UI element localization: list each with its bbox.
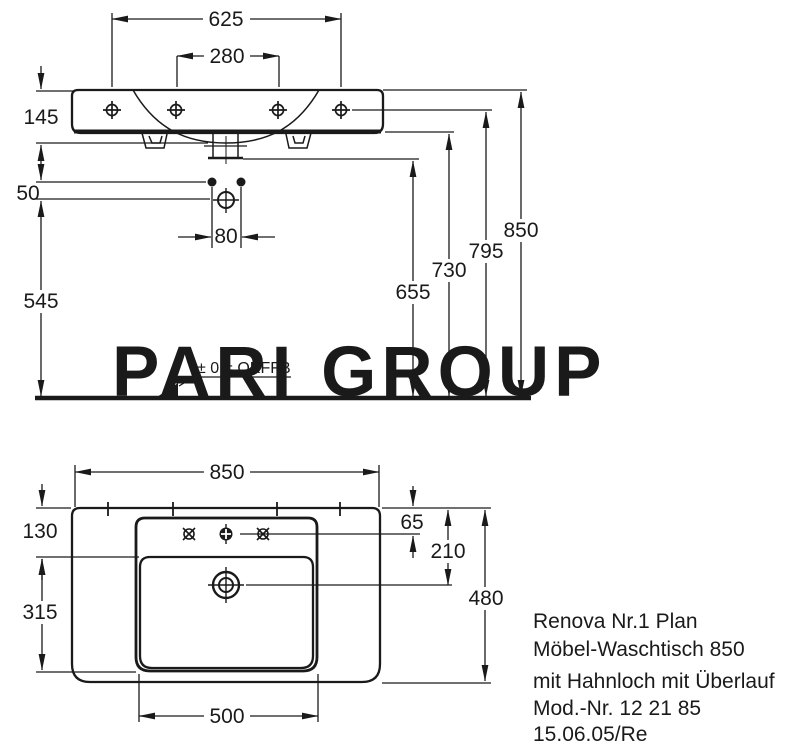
dim-label-850-width: 850 — [209, 461, 244, 484]
washbasin-dimension-drawing: PARI GROUP — [0, 0, 800, 753]
screw-hole-left — [208, 178, 217, 187]
product-feature: mit Hahnloch mit Überlauf — [533, 670, 775, 693]
dim-130: 130 — [22, 484, 139, 580]
optional-tap-hole-left — [183, 528, 195, 540]
left-bracket — [142, 133, 167, 148]
fixing-hole-3 — [269, 101, 287, 119]
dim-label-850-height: 850 — [503, 219, 538, 242]
dim-label-500: 500 — [209, 705, 244, 728]
dim-label-315: 315 — [22, 601, 57, 624]
product-name: Renova Nr.1 Plan — [533, 610, 698, 633]
dim-label-545: 545 — [23, 290, 58, 313]
dim-label-480: 480 — [468, 587, 503, 610]
product-model-number: Mod.-Nr. 12 21 85 — [533, 697, 701, 720]
dim-label-210: 210 — [430, 540, 465, 563]
dim-210: 210 — [425, 510, 471, 585]
dim-label-280: 280 — [209, 45, 244, 68]
floor-reference-label: ± 0 = OKFFB — [197, 360, 291, 377]
technical-drawing-page: PARI GROUP — [0, 0, 800, 753]
dim-label-50: 50 — [16, 182, 39, 205]
dim-label-795: 795 — [468, 240, 503, 263]
dim-315: 315 — [17, 559, 136, 672]
product-revision-date: 15.06.05/Re — [533, 723, 647, 746]
dim-545: 545 — [18, 201, 64, 396]
dim-label-145: 145 — [23, 106, 58, 129]
tap-hole-center — [220, 524, 233, 544]
dim-label-130: 130 — [22, 520, 57, 543]
fixing-hole-2 — [167, 101, 185, 119]
dim-50: 50 — [16, 182, 210, 205]
screw-hole-right — [237, 178, 246, 187]
dim-145: 145 — [23, 66, 73, 180]
fixing-hole-1 — [103, 101, 121, 119]
dim-label-655: 655 — [395, 281, 430, 304]
fixing-holes — [103, 101, 350, 119]
dim-label-80: 80 — [214, 225, 237, 248]
right-bracket — [286, 133, 311, 148]
dim-480: 480 — [382, 510, 509, 683]
dim-280: 280 — [177, 44, 279, 87]
dim-label-625: 625 — [208, 8, 243, 31]
drain-plan — [208, 567, 244, 603]
plan-view: 850 130 315 500 65 — [17, 460, 509, 728]
drain-stub — [204, 133, 247, 164]
bowl-curve — [133, 90, 319, 143]
dim-label-730: 730 — [431, 259, 466, 282]
dim-label-65: 65 — [400, 511, 423, 534]
product-type: Möbel-Waschtisch 850 — [533, 638, 745, 661]
siphon-outlet — [213, 188, 239, 213]
dim-850-width: 850 — [75, 460, 379, 507]
product-info-block: Renova Nr.1 Plan Möbel-Waschtisch 850 mi… — [533, 610, 775, 746]
fixing-hole-4 — [332, 101, 350, 119]
